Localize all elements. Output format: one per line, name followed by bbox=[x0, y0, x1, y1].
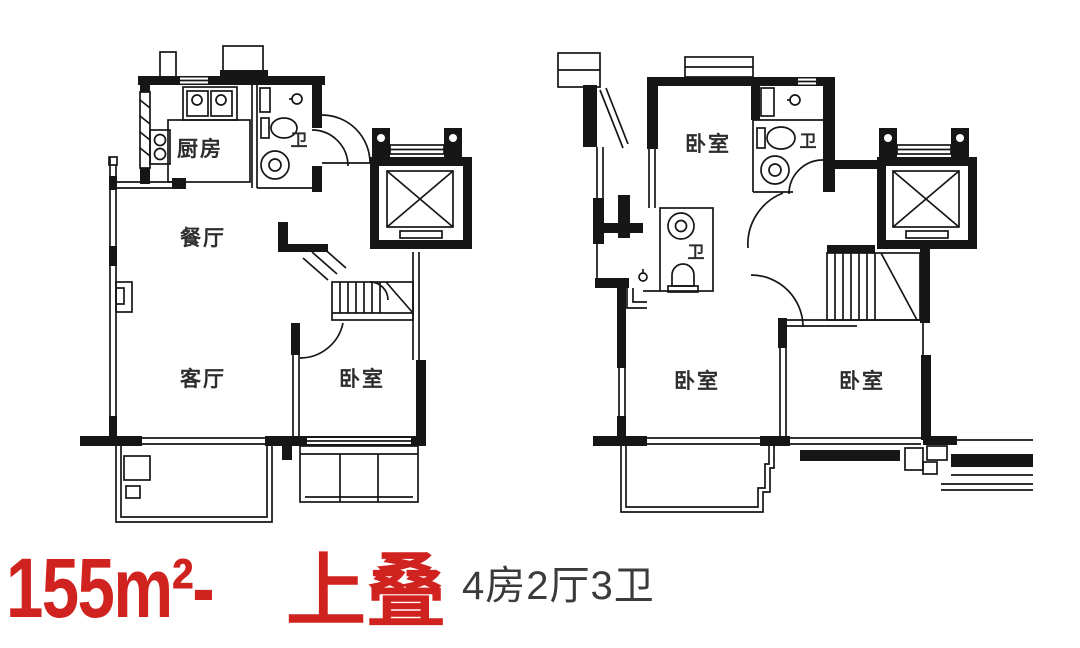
washbasin-icon bbox=[761, 156, 789, 184]
area-label: 155m²- bbox=[6, 546, 213, 630]
roof-projections bbox=[160, 46, 268, 78]
door-arc bbox=[789, 160, 823, 194]
room-label-bathroom: 卫 bbox=[291, 131, 308, 150]
bottom-wall bbox=[593, 436, 1033, 490]
room-label-kitchen: 厨房 bbox=[177, 137, 223, 161]
room-count-label: 4房2厅3卫 bbox=[462, 566, 655, 606]
bedroom-partitions bbox=[617, 288, 931, 440]
stove-icon bbox=[150, 130, 170, 164]
left-outer-wall bbox=[109, 157, 132, 440]
balcony bbox=[116, 446, 272, 522]
room-label-bathroom-top: 卫 bbox=[800, 132, 817, 151]
staircase bbox=[827, 245, 930, 323]
room-label-living: 客厅 bbox=[180, 367, 226, 391]
elevator-shaft bbox=[370, 128, 472, 249]
balcony bbox=[621, 446, 774, 512]
toilet-icon bbox=[757, 128, 765, 148]
room-label-bathroom-mid: 卫 bbox=[688, 243, 705, 262]
toilet-icon bbox=[672, 264, 694, 286]
room-label-bedroom-top: 卧室 bbox=[685, 132, 731, 156]
floor-plan-image: 厨房 卫 餐厅 客厅 卧室 bbox=[0, 0, 1080, 648]
kitchen-left-wall bbox=[140, 76, 150, 184]
room-label-bedroom-left: 卧室 bbox=[674, 369, 720, 393]
elevator-shaft bbox=[877, 128, 977, 249]
washbasin-icon bbox=[261, 151, 289, 179]
right-floor-plan: 卧室 卫 卫 卧室 卧室 bbox=[555, 30, 1035, 540]
washbasin-icon bbox=[668, 213, 694, 239]
room-label-bedroom: 卧室 bbox=[339, 367, 385, 391]
unit-type-label: 上叠 bbox=[286, 552, 446, 632]
kitchen-sink-icon bbox=[183, 87, 237, 120]
top-left-ledge bbox=[558, 53, 629, 288]
bay-window bbox=[300, 446, 418, 502]
room-label-bedroom-right: 卧室 bbox=[839, 369, 885, 393]
hall-door-arcs bbox=[748, 193, 803, 327]
room-label-dining: 餐厅 bbox=[180, 226, 226, 250]
left-floor-plan: 厨房 卫 餐厅 客厅 卧室 bbox=[60, 30, 540, 540]
wall-sink-icon bbox=[260, 88, 302, 112]
